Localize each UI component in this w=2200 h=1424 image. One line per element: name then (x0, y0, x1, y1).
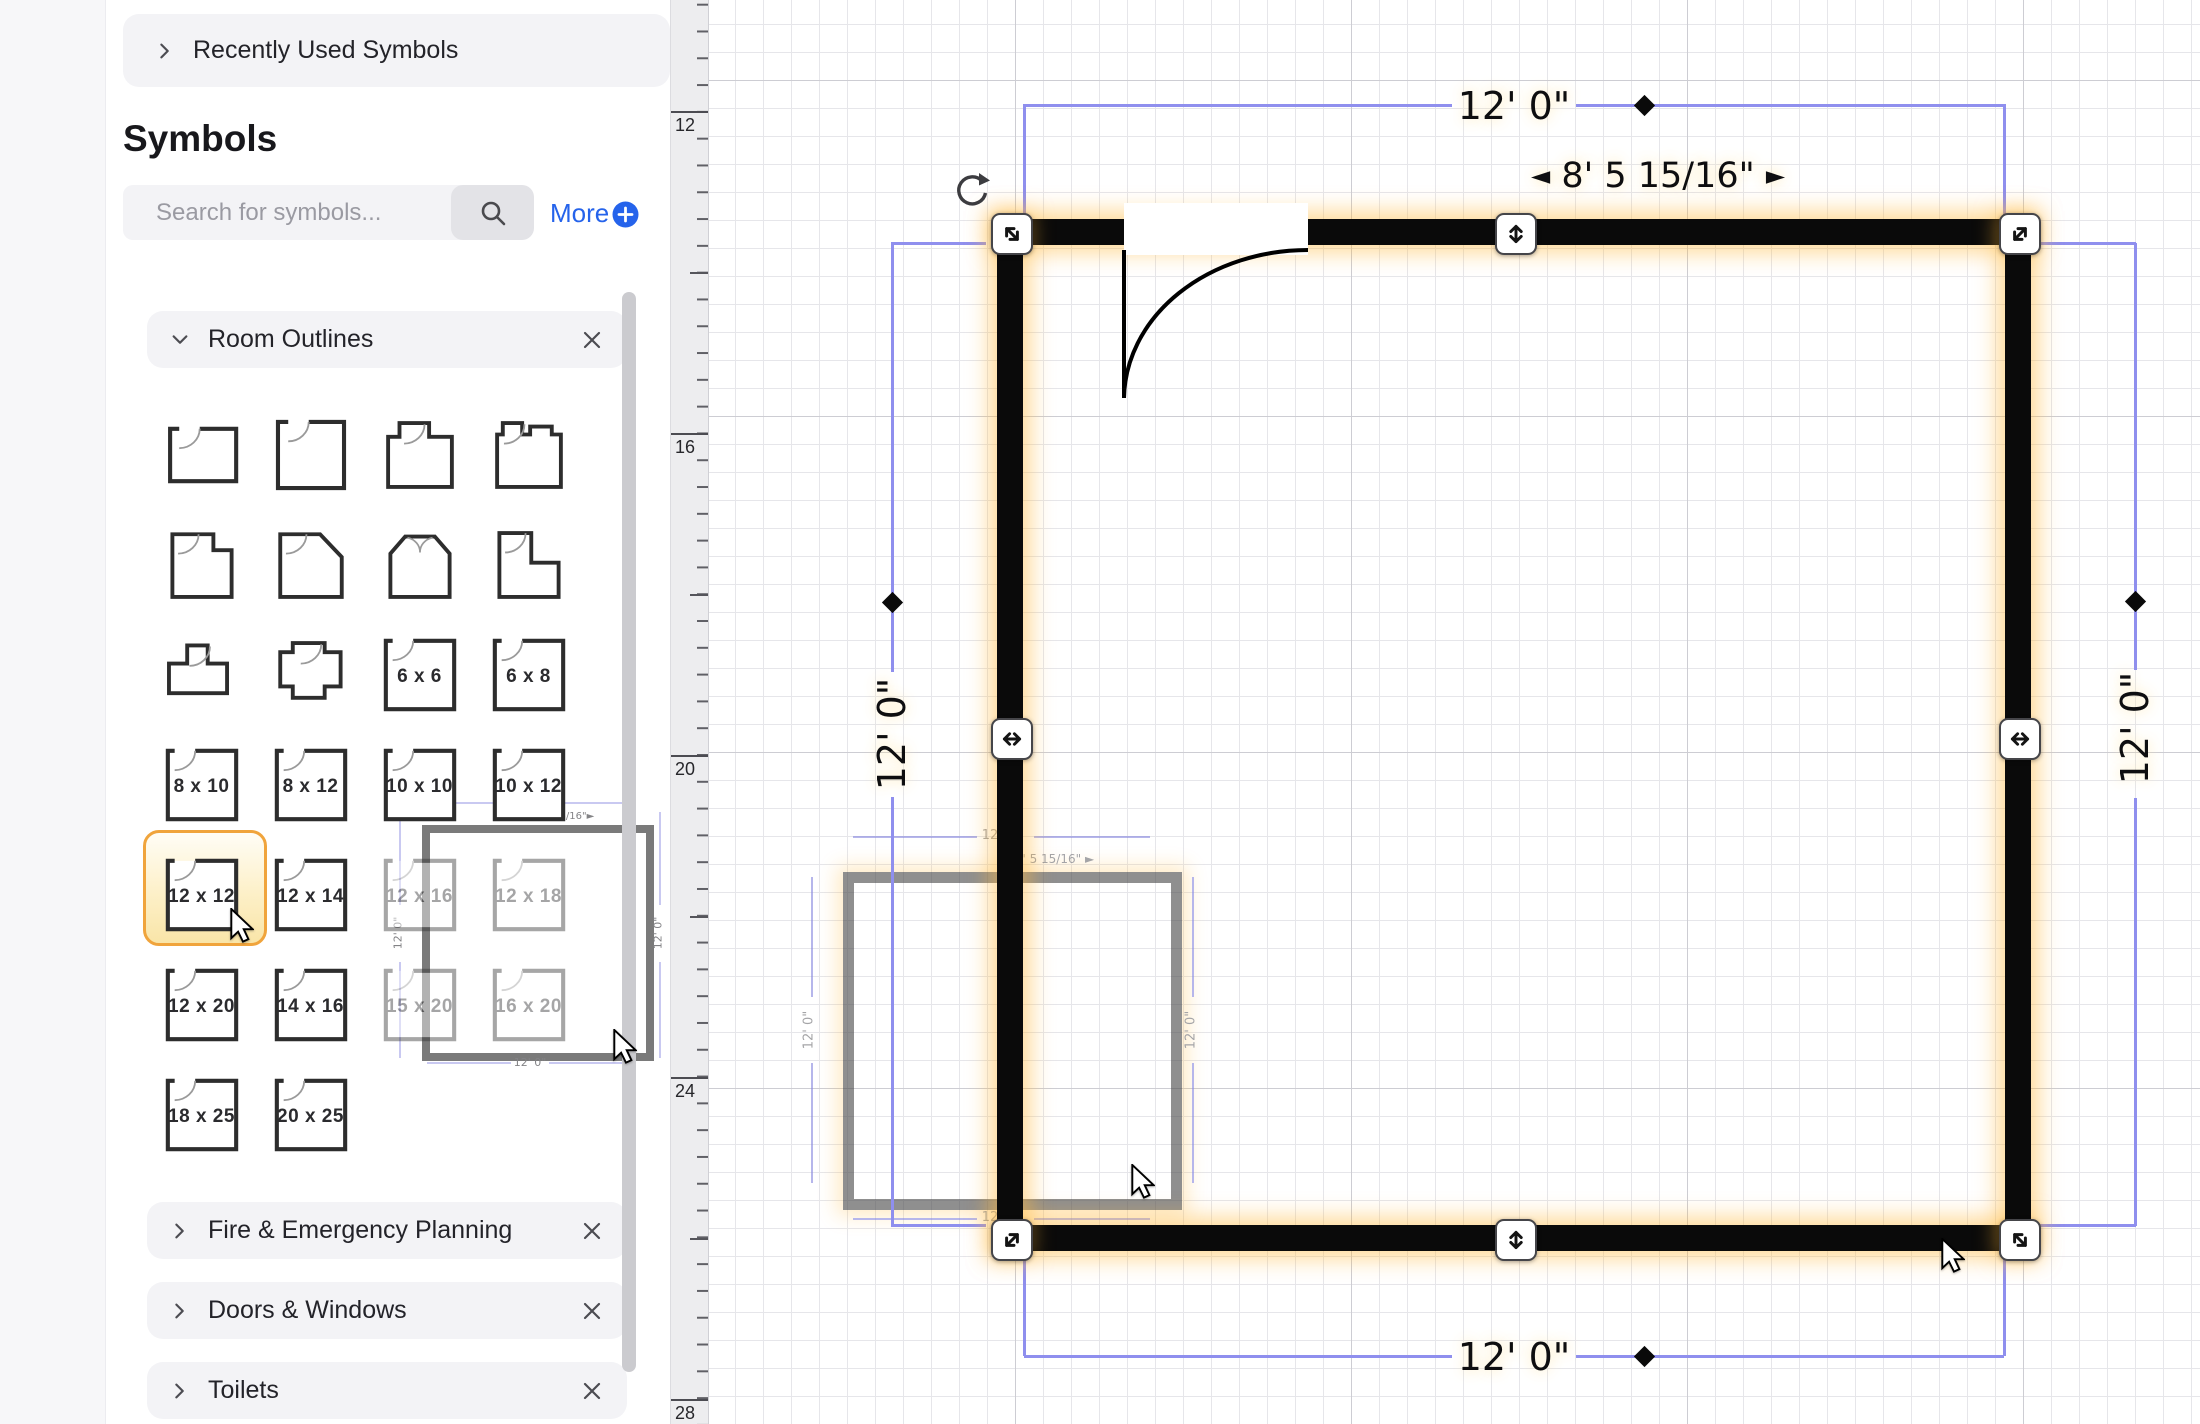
section-label: Fire & Emergency Planning (208, 1216, 512, 1245)
symbols-sidebar: Recently Used Symbols Symbols More Room … (0, 0, 670, 1424)
symbol-room-20x25[interactable]: 20 x 25 (256, 1060, 365, 1170)
symbol-room-6x8[interactable]: 6 x 8 (474, 620, 583, 730)
door-swing[interactable] (1114, 200, 1324, 415)
symbol-room-10x10[interactable]: 10 x 10 (365, 730, 474, 840)
section-label: Doors & Windows (208, 1296, 407, 1325)
symbol-room-8x10[interactable]: 8 x 10 (147, 730, 256, 840)
symbol-room-18x25[interactable]: 18 x 25 (147, 1060, 256, 1170)
symbol-room-corner-step[interactable] (147, 510, 256, 620)
close-icon[interactable] (583, 331, 601, 349)
mouse-cursor (230, 908, 254, 948)
symbol-room-bay[interactable] (365, 510, 474, 620)
room-height-dimension: 12' 0" (2113, 672, 2157, 785)
mouse-cursor (613, 1029, 637, 1069)
rotate-handle-icon[interactable] (952, 171, 992, 211)
symbol-grid: 6 x 6 6 x 8 8 x 10 8 x 12 10 x 10 10 x 1… (147, 400, 587, 1170)
symbol-room-l-shape[interactable] (474, 510, 583, 620)
dimension-line-segment (2134, 798, 2137, 1226)
room-width-dimension: 12' 0" (1458, 1335, 1571, 1379)
resize-handle-bottom-left[interactable] (991, 1219, 1033, 1261)
symbol-room-two-notches[interactable] (474, 400, 583, 510)
ruler-number: 24 (675, 1081, 695, 1102)
dimension-extension-line (2040, 1224, 2136, 1227)
symbol-room-15x20[interactable]: 15 x 20 (365, 950, 474, 1060)
dimension-extension-line (1023, 104, 1026, 220)
dimension-line-segment (1024, 1355, 1452, 1358)
ruler-number: 12 (675, 115, 695, 136)
chevron-right-icon (170, 1381, 190, 1401)
symbol-room-12x14[interactable]: 12 x 14 (256, 840, 365, 950)
room-width-dimension: 12' 0" (1458, 84, 1571, 128)
section-header-room-outlines[interactable]: Room Outlines (147, 311, 627, 368)
section-header-toilets[interactable]: Toilets (147, 1362, 627, 1419)
symbol-room-t-shape[interactable] (147, 620, 256, 730)
dimension-extension-line (891, 242, 986, 245)
mouse-cursor (1941, 1238, 1965, 1278)
resize-handle-left[interactable] (991, 718, 1033, 760)
vertical-ruler: 12 16 20 24 28 (670, 0, 709, 1424)
dimension-extension-line (891, 1224, 986, 1227)
door-offset-dimension: ◄ 8' 5 15/16" ► (1531, 156, 1785, 196)
recently-used-label: Recently Used Symbols (193, 36, 458, 65)
dimension-extension-line (1023, 1256, 1026, 1356)
symbol-room-rect-wide[interactable] (147, 400, 256, 510)
chevron-down-icon (170, 330, 190, 350)
more-shapes-link[interactable]: More (550, 198, 609, 229)
dimension-line-segment (891, 797, 894, 1226)
close-icon[interactable] (583, 1382, 601, 1400)
resize-handle-top[interactable] (1495, 213, 1537, 255)
ruler-number: 16 (675, 437, 695, 458)
resize-handle-right[interactable] (1999, 718, 2041, 760)
ruler-number: 28 (675, 1403, 695, 1424)
symbol-room-top-bump[interactable] (365, 400, 474, 510)
resize-handle-bottom-right[interactable] (1999, 1219, 2041, 1261)
symbol-room-beveled-corner[interactable] (256, 510, 365, 620)
close-icon[interactable] (583, 1222, 601, 1240)
section-header-fire-emergency[interactable]: Fire & Emergency Planning (147, 1202, 627, 1259)
page-title: Symbols (123, 118, 277, 160)
arrow-right-icon: ► (1766, 161, 1785, 190)
section-header-doors-windows[interactable]: Doors & Windows (147, 1282, 627, 1339)
section-label: Room Outlines (208, 325, 373, 354)
plus-icon[interactable] (612, 201, 639, 228)
symbol-room-12x18[interactable]: 12 x 18 (474, 840, 583, 950)
dimension-extension-line (2003, 1256, 2006, 1356)
search-button[interactable] (451, 185, 534, 240)
symbol-room-10x12[interactable]: 10 x 12 (474, 730, 583, 840)
drawing-canvas[interactable] (707, 0, 2200, 1424)
symbol-room-8x12[interactable]: 8 x 12 (256, 730, 365, 840)
dimension-extension-line (2003, 104, 2006, 220)
recently-used-section[interactable]: Recently Used Symbols (123, 14, 670, 87)
dimension-line-segment (1024, 104, 1452, 107)
ruler-number: 20 (675, 759, 695, 780)
room-height-dimension: 12' 0" (870, 678, 914, 791)
section-label: Toilets (208, 1376, 279, 1405)
resize-handle-bottom[interactable] (1495, 1219, 1537, 1261)
symbol-room-cross[interactable] (256, 620, 365, 730)
symbol-room-14x16[interactable]: 14 x 16 (256, 950, 365, 1060)
search-input[interactable] (123, 185, 482, 240)
dimension-extension-line (2040, 242, 2136, 245)
arrow-left-icon: ◄ (1531, 161, 1550, 190)
sidebar-scrollbar[interactable] (622, 292, 636, 1372)
chevron-right-icon (155, 41, 175, 61)
symbol-room-16x20[interactable]: 16 x 20 (474, 950, 583, 1060)
resize-handle-top-right[interactable] (1999, 213, 2041, 255)
search-icon (478, 198, 508, 228)
symbol-room-6x6[interactable]: 6 x 6 (365, 620, 474, 730)
close-icon[interactable] (583, 1302, 601, 1320)
symbol-room-square[interactable] (256, 400, 365, 510)
chevron-right-icon (170, 1221, 190, 1241)
symbol-room-12x16[interactable]: 12 x 16 (365, 840, 474, 950)
symbol-room-12x20[interactable]: 12 x 20 (147, 950, 256, 1060)
chevron-right-icon (170, 1301, 190, 1321)
resize-handle-top-left[interactable] (991, 213, 1033, 255)
mouse-cursor (1131, 1164, 1155, 1204)
